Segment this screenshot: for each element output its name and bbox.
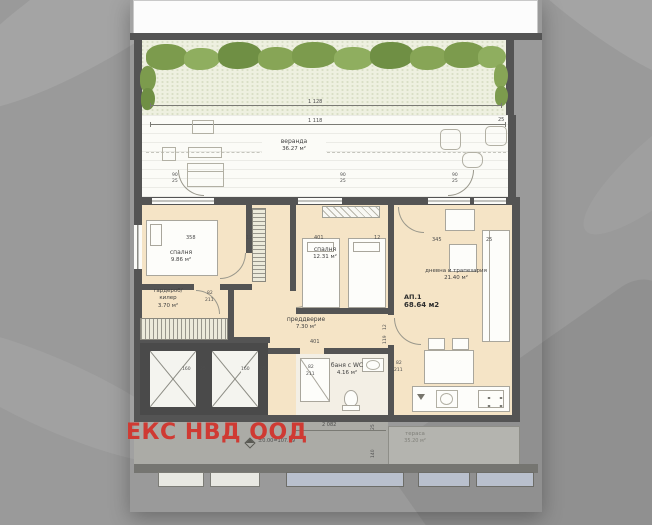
bath-area: 4.16 м² [322, 370, 372, 377]
agency-watermark: ЕКС НВД ООД [126, 420, 308, 445]
dimension-line [296, 430, 386, 431]
window-flag: 90 [172, 174, 178, 179]
bedroom2-name: спалня [300, 246, 350, 254]
sofa-icon [482, 230, 510, 342]
terrace-table-icon [192, 120, 214, 134]
hall-name: преддверие [280, 316, 332, 324]
toilet-tank-icon [342, 405, 360, 411]
dim-25: 25 [200, 368, 206, 373]
door-size-dim: 211 [205, 299, 214, 304]
apartment-id-label: АП.1 68.64 м2 [404, 293, 439, 311]
dim-25: 25 [486, 238, 492, 243]
hall-width-dim: 401 [310, 340, 320, 345]
bath-label: баня с WC 4.16 м² [322, 362, 372, 378]
terrace-label: тераса 35.20 м² [390, 431, 440, 445]
dim-25: 25 [260, 368, 266, 373]
building-top-wall [130, 33, 542, 40]
window-flag: 90 [340, 174, 346, 179]
interior-wall [296, 308, 392, 314]
dim-140: 140 [372, 449, 377, 458]
dim-12: 12 [384, 324, 389, 330]
lounge-chair-icon [485, 126, 507, 146]
bedroom1-width-dim: 358 [186, 236, 196, 241]
terrace-chair-icon [162, 147, 176, 161]
bedroom1-label: спалня 9.86 м² [156, 249, 206, 265]
window-icon [428, 198, 470, 204]
sink-bowl-icon [440, 393, 453, 405]
armchair-icon [445, 209, 475, 231]
veranda-right-wall [508, 115, 516, 197]
door-size-dim: 82 [207, 292, 213, 297]
interior-wall [388, 205, 394, 315]
dining-chair-icon [452, 338, 469, 350]
door-size-dim: 82 [308, 366, 314, 371]
living-width-dim: 345 [432, 238, 442, 243]
terrace-name: тераса [390, 431, 440, 438]
window-icon [298, 198, 342, 204]
interior-wall [290, 205, 296, 291]
pillow-icon [353, 242, 380, 252]
window-icon [474, 198, 506, 204]
dining-chair-icon [428, 338, 445, 350]
veranda-width-dim: 1 118 [306, 119, 324, 124]
dim-119: 119 [384, 335, 389, 344]
dim-12: 12 [374, 236, 380, 241]
apartment-total-area: 68.64 м2 [404, 301, 439, 310]
wardrobe-icon [140, 318, 228, 340]
elevator-width-dim: 160 [182, 368, 191, 373]
lounge-chair-icon [440, 129, 461, 150]
stove-icon [478, 390, 504, 408]
dim-25: 25 [372, 424, 377, 430]
wardrobe-icon [322, 206, 380, 218]
terrace-bench-icon [188, 147, 222, 158]
living-area: 21.40 м² [420, 275, 492, 282]
lower-window-panel [476, 472, 534, 487]
dim-25: 25 [498, 118, 504, 123]
window-icon [152, 198, 214, 204]
elevator-cross-icon [212, 351, 258, 407]
apartment-right-wall [512, 197, 520, 422]
interior-wall [228, 290, 234, 340]
bath-name: баня с WC [322, 362, 372, 370]
bedroom2-area: 12.31 м² [300, 254, 350, 261]
window-flag: 25 [172, 180, 178, 185]
window-flag: 25 [452, 180, 458, 185]
dimension-line [150, 105, 502, 106]
hall-area: 7.30 м² [280, 324, 332, 331]
background-streak [566, 66, 652, 253]
door-size-dim: 211 [394, 369, 403, 374]
apartment-number: АП.1 [404, 293, 439, 301]
veranda-area: 36.27 м² [262, 146, 326, 153]
elevator-width-dim: 160 [241, 368, 250, 373]
lounge-chair-icon [462, 152, 483, 168]
lower-room-panel [210, 472, 260, 487]
door-size-dim: 211 [306, 373, 315, 378]
bottom-width-dim: 2 082 [320, 423, 338, 428]
veranda-label: веранда 36.27 м² [262, 138, 326, 154]
bedroom2-label: спалня 12.31 м² [300, 246, 350, 262]
bedroom2-width-dim: 401 [314, 236, 324, 241]
sofa-seat-line [489, 230, 490, 342]
plan-upper-block [133, 0, 538, 34]
lower-window-panel [286, 472, 404, 487]
interior-wall [388, 354, 394, 415]
bedroom1-name: спалня [156, 249, 206, 257]
window-flag: 25 [340, 180, 346, 185]
living-label: дневна и трапезария 21.40 м² [420, 268, 492, 283]
dining-table-icon [424, 350, 474, 384]
elevator-cross-icon [150, 351, 196, 407]
terrace-area: 35.20 м² [390, 438, 440, 445]
closet-area: 3.70 м² [148, 303, 188, 310]
door-size-dim: 82 [396, 362, 402, 367]
dimension-tick [150, 103, 151, 108]
closet-name: гардероб/ килер [148, 288, 188, 303]
closet-label: гардероб/ килер 3.70 м² [148, 288, 188, 310]
lower-room-panel [158, 472, 204, 487]
kitchen-symbol-icon [417, 394, 425, 400]
lower-window-panel [418, 472, 470, 487]
window-flag: 90 [452, 174, 458, 179]
garden-left-wall [134, 40, 142, 197]
hall-label: преддверие 7.30 м² [280, 316, 332, 332]
garden-width-dim: 1 128 [306, 100, 324, 105]
interior-wall [220, 284, 252, 290]
wardrobe-icon [252, 208, 266, 282]
dim-12: 12 [246, 236, 252, 241]
dimension-tick [501, 103, 502, 108]
bedroom1-area: 9.86 м² [156, 257, 206, 264]
veranda-name: веранда [262, 138, 326, 146]
pillow-icon [150, 224, 162, 246]
floorplan-image: 1 128 1 118 25 веранда 36.27 м² 90 25 90… [0, 0, 652, 525]
dimension-tick [150, 122, 151, 127]
window-icon [134, 225, 142, 269]
